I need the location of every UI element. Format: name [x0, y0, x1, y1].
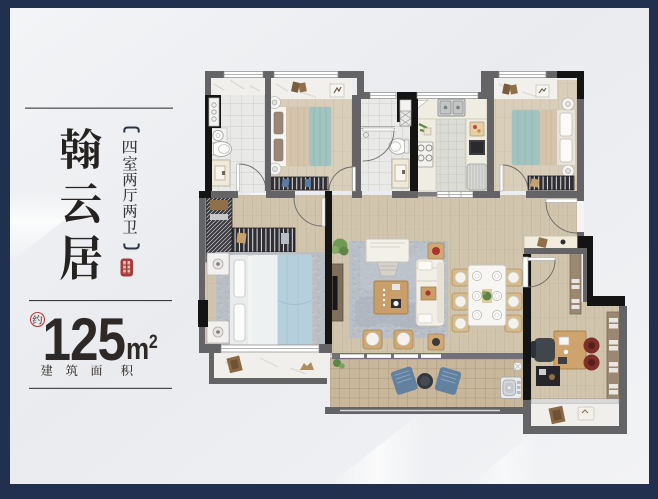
- svg-text:125: 125: [43, 305, 126, 373]
- svg-text:m: m: [126, 332, 149, 367]
- svg-text:2: 2: [149, 331, 158, 353]
